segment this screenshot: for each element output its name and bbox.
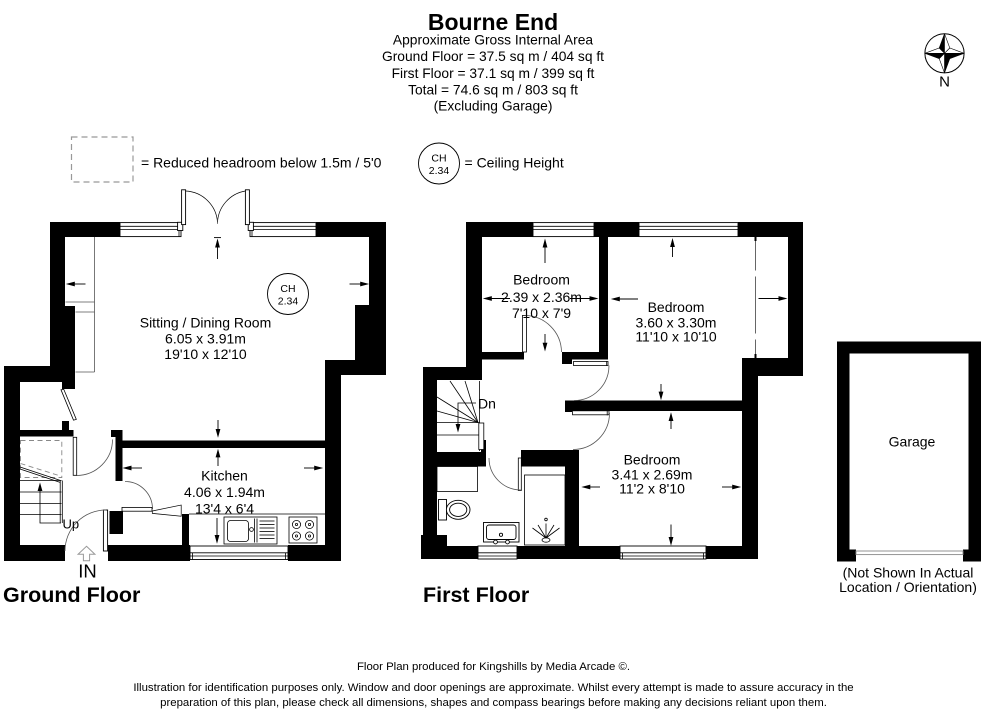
svg-text:Floor Plan produced for Kingsh: Floor Plan produced for Kingshills by Me… (357, 661, 630, 673)
svg-text:Garage: Garage (889, 434, 936, 450)
svg-text:13'4 x 6'4: 13'4 x 6'4 (195, 501, 254, 517)
svg-text:Up: Up (63, 517, 80, 532)
svg-text:19'10 x 12'10: 19'10 x 12'10 (164, 346, 247, 362)
svg-text:Bedroom: Bedroom (648, 299, 705, 315)
svg-text:2.39 x 2.36m: 2.39 x 2.36m (501, 289, 582, 305)
svg-text:First Floor = 37.1 sq m / 399: First Floor = 37.1 sq m / 399 sq ft (392, 66, 595, 81)
svg-text:CH: CH (431, 153, 446, 165)
svg-text:Approximate Gross Internal Are: Approximate Gross Internal Area (393, 33, 593, 48)
svg-text:11'10 x 10'10: 11'10 x 10'10 (635, 329, 717, 345)
svg-text:Ground Floor = 37.5 sq m / 404: Ground Floor = 37.5 sq m / 404 sq ft (382, 49, 604, 64)
svg-text:Sitting / Dining Room: Sitting / Dining Room (140, 315, 272, 331)
svg-text:Bourne End: Bourne End (428, 9, 558, 35)
svg-text:Illustration for identificatio: Illustration for identification purposes… (133, 682, 853, 694)
svg-text:Ground Floor: Ground Floor (3, 583, 141, 607)
svg-text:11'2 x 8'10: 11'2 x 8'10 (619, 481, 685, 497)
svg-text:IN: IN (78, 561, 97, 582)
svg-text:Location / Orientation): Location / Orientation) (839, 579, 977, 595)
svg-text:(Excluding Garage): (Excluding Garage) (434, 98, 553, 113)
svg-text:6.05 x 3.91m: 6.05 x 3.91m (165, 331, 246, 347)
svg-text:Bedroom: Bedroom (513, 272, 570, 288)
svg-text:N: N (939, 74, 950, 91)
svg-text:preparation of this plan, plea: preparation of this plan, please check a… (160, 697, 827, 709)
svg-text:Kitchen: Kitchen (201, 468, 248, 484)
svg-text:CH: CH (280, 283, 295, 295)
svg-text:First Floor: First Floor (423, 583, 530, 607)
svg-text:Bedroom: Bedroom (624, 452, 681, 468)
svg-text:2.34: 2.34 (429, 165, 450, 177)
svg-text:Dn: Dn (478, 396, 496, 412)
svg-text:Total = 74.6 sq m / 803 sq ft: Total = 74.6 sq m / 803 sq ft (408, 83, 578, 98)
svg-text:7'10 x 7'9: 7'10 x 7'9 (512, 305, 571, 321)
svg-text:= Reduced headroom below 1.5m: = Reduced headroom below 1.5m / 5'0 (141, 155, 382, 171)
svg-text:2.34: 2.34 (278, 296, 299, 308)
svg-text:= Ceiling Height: = Ceiling Height (465, 155, 564, 171)
svg-text:4.06 x 1.94m: 4.06 x 1.94m (184, 484, 265, 500)
